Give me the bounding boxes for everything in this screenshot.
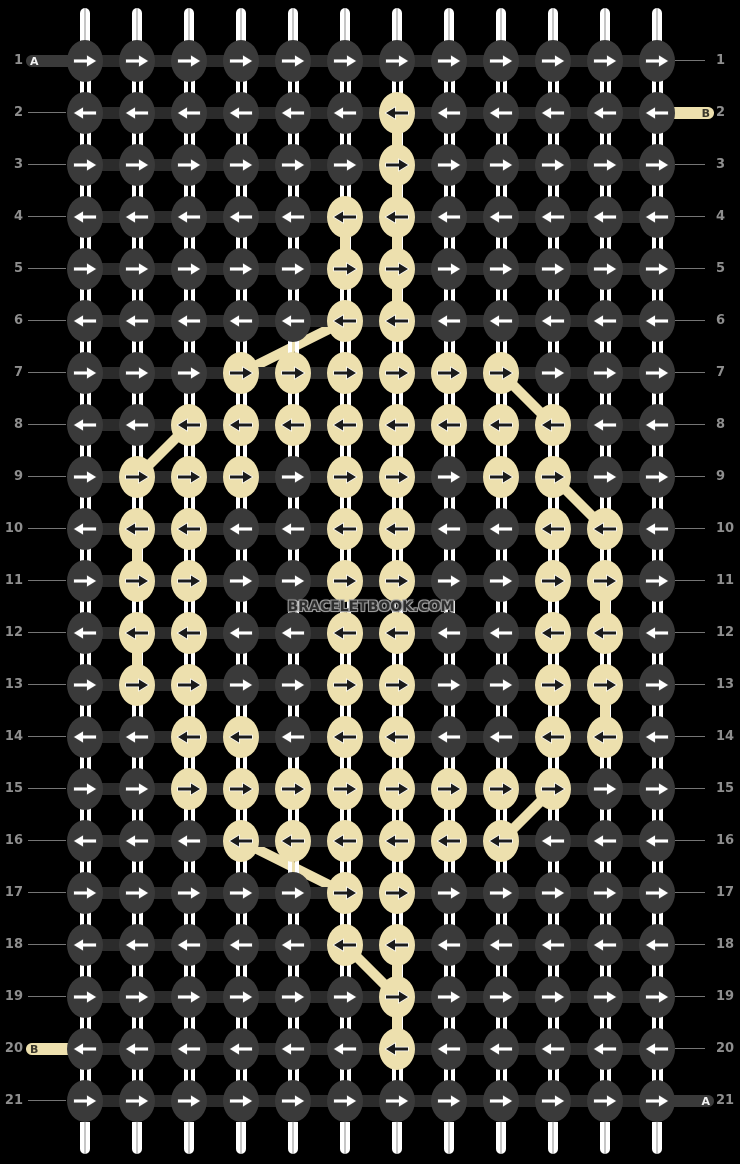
arrow-right-icon bbox=[592, 261, 618, 277]
row-number-right: 5 bbox=[716, 262, 725, 276]
row-guide-line-right bbox=[675, 892, 705, 893]
arrow-right-icon bbox=[644, 1093, 670, 1109]
row-guide-line-right bbox=[675, 944, 705, 945]
arrow-right-icon bbox=[384, 53, 410, 69]
knot bbox=[379, 404, 415, 446]
knot bbox=[587, 872, 623, 914]
knot bbox=[535, 144, 571, 186]
knot bbox=[119, 560, 155, 602]
row-guide-line-right bbox=[675, 372, 705, 373]
arrow-left-icon bbox=[436, 625, 462, 641]
row-number-right: 16 bbox=[716, 834, 734, 848]
arrow-left-icon bbox=[540, 521, 566, 537]
knot bbox=[587, 144, 623, 186]
knot bbox=[223, 352, 259, 394]
row-guide-line-left bbox=[28, 684, 66, 685]
knot bbox=[119, 92, 155, 134]
knot bbox=[223, 560, 259, 602]
arrow-left-icon bbox=[644, 1041, 670, 1057]
row-number-left: 5 bbox=[0, 262, 23, 276]
knot bbox=[275, 404, 311, 446]
arrow-left-icon bbox=[228, 209, 254, 225]
knot bbox=[119, 612, 155, 654]
knot bbox=[379, 196, 415, 238]
arrow-right-icon bbox=[644, 261, 670, 277]
knot bbox=[67, 456, 103, 498]
arrow-right-icon bbox=[540, 157, 566, 173]
arrow-right-icon bbox=[540, 1093, 566, 1109]
row-guide-line-right bbox=[675, 476, 705, 477]
arrow-right-icon bbox=[488, 677, 514, 693]
row-number-right: 7 bbox=[716, 366, 725, 380]
arrow-right-icon bbox=[644, 573, 670, 589]
arrow-left-icon bbox=[228, 1041, 254, 1057]
arrow-left-icon bbox=[384, 833, 410, 849]
warp-string-top bbox=[496, 8, 506, 42]
arrow-left-icon bbox=[332, 937, 358, 953]
knot bbox=[119, 144, 155, 186]
knot bbox=[379, 508, 415, 550]
knot bbox=[327, 40, 363, 82]
knot bbox=[379, 40, 415, 82]
arrow-right-icon bbox=[592, 365, 618, 381]
knot bbox=[171, 612, 207, 654]
knot bbox=[67, 92, 103, 134]
warp-string-top bbox=[548, 8, 558, 42]
knot bbox=[171, 248, 207, 290]
arrow-left-icon bbox=[176, 105, 202, 121]
knot bbox=[587, 976, 623, 1018]
knot bbox=[379, 612, 415, 654]
arrow-right-icon bbox=[592, 781, 618, 797]
arrow-left-icon bbox=[540, 417, 566, 433]
arrow-right-icon bbox=[436, 1093, 462, 1109]
warp-string-top bbox=[444, 8, 454, 42]
arrow-left-icon bbox=[72, 625, 98, 641]
arrow-right-icon bbox=[176, 989, 202, 1005]
row-guide-line-left bbox=[28, 1100, 66, 1101]
arrow-right-icon bbox=[384, 469, 410, 485]
row-number-left: 14 bbox=[0, 730, 23, 744]
knot bbox=[535, 196, 571, 238]
row-number-left: 19 bbox=[0, 990, 23, 1004]
knot bbox=[639, 1028, 675, 1070]
knot bbox=[587, 1080, 623, 1122]
knot bbox=[327, 872, 363, 914]
arrow-left-icon bbox=[488, 105, 514, 121]
knot bbox=[223, 768, 259, 810]
arrow-left-icon bbox=[644, 105, 670, 121]
arrow-right-icon bbox=[332, 365, 358, 381]
arrow-right-icon bbox=[72, 365, 98, 381]
row-guide-line-left bbox=[28, 476, 66, 477]
arrow-right-icon bbox=[644, 885, 670, 901]
knot bbox=[483, 976, 519, 1018]
knot bbox=[67, 248, 103, 290]
knot bbox=[535, 456, 571, 498]
arrow-left-icon bbox=[644, 937, 670, 953]
knot bbox=[171, 820, 207, 862]
arrow-left-icon bbox=[436, 1041, 462, 1057]
knot bbox=[379, 144, 415, 186]
knot bbox=[223, 404, 259, 446]
row-number-right: 13 bbox=[716, 678, 734, 692]
knot bbox=[535, 1080, 571, 1122]
knot bbox=[171, 1080, 207, 1122]
knot bbox=[67, 196, 103, 238]
arrow-right-icon bbox=[280, 989, 306, 1005]
arrow-left-icon bbox=[72, 729, 98, 745]
arrow-right-icon bbox=[436, 989, 462, 1005]
row-number-left: 1 bbox=[0, 54, 23, 68]
arrow-left-icon bbox=[280, 1041, 306, 1057]
warp-string-bottom bbox=[236, 1122, 246, 1154]
knot bbox=[327, 300, 363, 342]
arrow-left-icon bbox=[228, 417, 254, 433]
warp-string-bottom bbox=[392, 1122, 402, 1154]
row-number-left: 11 bbox=[0, 574, 23, 588]
arrow-left-icon bbox=[384, 1041, 410, 1057]
warp-string-bottom bbox=[288, 1122, 298, 1154]
arrow-left-icon bbox=[332, 833, 358, 849]
arrow-right-icon bbox=[488, 53, 514, 69]
knot bbox=[171, 40, 207, 82]
arrow-left-icon bbox=[488, 1041, 514, 1057]
knot bbox=[587, 300, 623, 342]
knot bbox=[483, 92, 519, 134]
arrow-right-icon bbox=[384, 365, 410, 381]
knot bbox=[587, 456, 623, 498]
arrow-right-icon bbox=[228, 365, 254, 381]
arrow-right-icon bbox=[488, 157, 514, 173]
arrow-right-icon bbox=[72, 885, 98, 901]
row-number-left: 7 bbox=[0, 366, 23, 380]
warp-string-top bbox=[392, 8, 402, 42]
knot bbox=[119, 1028, 155, 1070]
arrow-left-icon bbox=[280, 625, 306, 641]
knot bbox=[483, 144, 519, 186]
knot bbox=[483, 196, 519, 238]
arrow-left-icon bbox=[488, 521, 514, 537]
arrow-right-icon bbox=[488, 989, 514, 1005]
arrow-left-icon bbox=[124, 833, 150, 849]
knot bbox=[223, 144, 259, 186]
knot bbox=[379, 352, 415, 394]
arrow-left-icon bbox=[488, 209, 514, 225]
row-guide-line-left bbox=[28, 892, 66, 893]
arrow-left-icon bbox=[540, 729, 566, 745]
knot bbox=[587, 612, 623, 654]
row-number-right: 6 bbox=[716, 314, 725, 328]
arrow-left-icon bbox=[176, 625, 202, 641]
row-number-left: 2 bbox=[0, 106, 23, 120]
arrow-right-icon bbox=[176, 677, 202, 693]
arrow-right-icon bbox=[384, 1093, 410, 1109]
warp-string-bottom bbox=[132, 1122, 142, 1154]
arrow-left-icon bbox=[176, 1041, 202, 1057]
arrow-left-icon bbox=[124, 521, 150, 537]
arrow-left-icon bbox=[176, 729, 202, 745]
arrow-left-icon bbox=[488, 313, 514, 329]
knot bbox=[119, 456, 155, 498]
arrow-right-icon bbox=[488, 365, 514, 381]
arrow-right-icon bbox=[540, 261, 566, 277]
knot bbox=[223, 976, 259, 1018]
knot bbox=[431, 976, 467, 1018]
knot bbox=[639, 404, 675, 446]
watermark: BRACELETBOOK.COM bbox=[286, 599, 456, 615]
arrow-left-icon bbox=[592, 1041, 618, 1057]
row-guide-line-right bbox=[675, 1048, 705, 1049]
row-number-left: 17 bbox=[0, 886, 23, 900]
arrow-right-icon bbox=[644, 781, 670, 797]
knot bbox=[379, 300, 415, 342]
arrow-right-icon bbox=[72, 989, 98, 1005]
row-guide-line-right bbox=[675, 320, 705, 321]
row-guide-line-left bbox=[28, 632, 66, 633]
knot bbox=[223, 1028, 259, 1070]
knot bbox=[639, 456, 675, 498]
arrow-right-icon bbox=[124, 53, 150, 69]
knot bbox=[223, 612, 259, 654]
knot bbox=[327, 404, 363, 446]
knot bbox=[431, 92, 467, 134]
arrow-right-icon bbox=[72, 157, 98, 173]
knot bbox=[67, 716, 103, 758]
warp-string-top bbox=[340, 8, 350, 42]
arrow-left-icon bbox=[280, 833, 306, 849]
knot bbox=[171, 768, 207, 810]
arrow-right-icon bbox=[436, 469, 462, 485]
knot bbox=[223, 664, 259, 706]
arrow-left-icon bbox=[280, 105, 306, 121]
knot bbox=[67, 352, 103, 394]
arrow-left-icon bbox=[592, 521, 618, 537]
knot bbox=[223, 456, 259, 498]
row-guide-line-left bbox=[28, 164, 66, 165]
knot bbox=[67, 768, 103, 810]
knot bbox=[275, 144, 311, 186]
row-number-right: 2 bbox=[716, 106, 725, 120]
knot bbox=[483, 872, 519, 914]
knot bbox=[223, 300, 259, 342]
arrow-right-icon bbox=[228, 53, 254, 69]
arrow-right-icon bbox=[72, 1093, 98, 1109]
knot bbox=[119, 40, 155, 82]
arrow-right-icon bbox=[280, 781, 306, 797]
arrow-left-icon bbox=[540, 833, 566, 849]
knot bbox=[483, 768, 519, 810]
row-number-right: 20 bbox=[716, 1042, 734, 1056]
knot bbox=[639, 976, 675, 1018]
knot bbox=[587, 508, 623, 550]
arrow-left-icon bbox=[280, 521, 306, 537]
knot bbox=[119, 1080, 155, 1122]
knot bbox=[639, 92, 675, 134]
arrow-right-icon bbox=[124, 885, 150, 901]
knot bbox=[431, 612, 467, 654]
knot bbox=[483, 508, 519, 550]
arrow-right-icon bbox=[124, 1093, 150, 1109]
knot bbox=[327, 196, 363, 238]
arrow-left-icon bbox=[592, 833, 618, 849]
knot bbox=[327, 456, 363, 498]
knot bbox=[67, 1028, 103, 1070]
arrow-left-icon bbox=[488, 729, 514, 745]
arrow-right-icon bbox=[488, 1093, 514, 1109]
arrow-right-icon bbox=[228, 1093, 254, 1109]
arrow-right-icon bbox=[540, 677, 566, 693]
arrow-left-icon bbox=[228, 521, 254, 537]
arrow-left-icon bbox=[488, 625, 514, 641]
knot bbox=[171, 1028, 207, 1070]
row-guide-line-right bbox=[675, 60, 705, 61]
thread-letter: B bbox=[30, 1044, 38, 1055]
arrow-right-icon bbox=[176, 53, 202, 69]
knot bbox=[639, 924, 675, 966]
row-guide-line-left bbox=[28, 996, 66, 997]
arrow-right-icon bbox=[436, 573, 462, 589]
knot bbox=[535, 1028, 571, 1070]
row-number-right: 3 bbox=[716, 158, 725, 172]
arrow-right-icon bbox=[72, 53, 98, 69]
row-number-right: 10 bbox=[716, 522, 734, 536]
knot bbox=[275, 92, 311, 134]
knot bbox=[587, 768, 623, 810]
arrow-right-icon bbox=[124, 469, 150, 485]
knot bbox=[535, 508, 571, 550]
arrow-right-icon bbox=[228, 573, 254, 589]
knot bbox=[431, 664, 467, 706]
arrow-left-icon bbox=[384, 937, 410, 953]
knot bbox=[119, 248, 155, 290]
arrow-left-icon bbox=[228, 937, 254, 953]
row-guide-line-left bbox=[28, 372, 66, 373]
arrow-right-icon bbox=[488, 781, 514, 797]
arrow-right-icon bbox=[644, 365, 670, 381]
knot bbox=[587, 404, 623, 446]
knot bbox=[171, 196, 207, 238]
knot bbox=[483, 924, 519, 966]
knot bbox=[535, 820, 571, 862]
arrow-right-icon bbox=[384, 157, 410, 173]
arrow-right-icon bbox=[332, 885, 358, 901]
arrow-right-icon bbox=[124, 677, 150, 693]
knot bbox=[171, 664, 207, 706]
arrow-left-icon bbox=[436, 937, 462, 953]
row-guide-line-left bbox=[28, 580, 66, 581]
arrow-left-icon bbox=[72, 313, 98, 329]
thread-end-b: B bbox=[26, 1043, 68, 1055]
arrow-left-icon bbox=[280, 937, 306, 953]
arrow-left-icon bbox=[228, 833, 254, 849]
warp-string-top bbox=[236, 8, 246, 42]
knot bbox=[587, 716, 623, 758]
knot bbox=[431, 144, 467, 186]
row-guide-line-right bbox=[675, 736, 705, 737]
arrow-right-icon bbox=[332, 469, 358, 485]
row-guide-line-right bbox=[675, 684, 705, 685]
arrow-left-icon bbox=[124, 105, 150, 121]
row-guide-line-right bbox=[675, 216, 705, 217]
row-guide-line-left bbox=[28, 112, 66, 113]
arrow-right-icon bbox=[280, 1093, 306, 1109]
arrow-left-icon bbox=[124, 937, 150, 953]
knot bbox=[431, 300, 467, 342]
knot bbox=[379, 456, 415, 498]
arrow-right-icon bbox=[540, 573, 566, 589]
row-number-right: 19 bbox=[716, 990, 734, 1004]
arrow-left-icon bbox=[540, 937, 566, 953]
arrow-right-icon bbox=[72, 677, 98, 693]
knot bbox=[639, 716, 675, 758]
knot bbox=[639, 144, 675, 186]
arrow-right-icon bbox=[644, 989, 670, 1005]
knot bbox=[483, 300, 519, 342]
knot bbox=[379, 248, 415, 290]
knot bbox=[119, 716, 155, 758]
knot bbox=[535, 612, 571, 654]
row-number-right: 15 bbox=[716, 782, 734, 796]
knot bbox=[67, 300, 103, 342]
arrow-right-icon bbox=[228, 989, 254, 1005]
knot bbox=[327, 716, 363, 758]
knot bbox=[275, 768, 311, 810]
arrow-right-icon bbox=[488, 573, 514, 589]
warp-string-bottom bbox=[80, 1122, 90, 1154]
knot bbox=[275, 1028, 311, 1070]
arrow-left-icon bbox=[176, 833, 202, 849]
knot bbox=[67, 560, 103, 602]
knot bbox=[587, 1028, 623, 1070]
knot bbox=[535, 716, 571, 758]
arrow-right-icon bbox=[124, 573, 150, 589]
knot bbox=[639, 40, 675, 82]
row-number-left: 10 bbox=[0, 522, 23, 536]
row-number-left: 8 bbox=[0, 418, 23, 432]
arrow-right-icon bbox=[488, 261, 514, 277]
arrow-left-icon bbox=[124, 1041, 150, 1057]
arrow-right-icon bbox=[280, 885, 306, 901]
knot bbox=[119, 924, 155, 966]
row-guide-line-left bbox=[28, 736, 66, 737]
arrow-right-icon bbox=[332, 677, 358, 693]
arrow-right-icon bbox=[72, 261, 98, 277]
knot bbox=[119, 820, 155, 862]
knot bbox=[535, 560, 571, 602]
arrow-left-icon bbox=[384, 105, 410, 121]
arrow-left-icon bbox=[124, 417, 150, 433]
knot bbox=[327, 924, 363, 966]
arrow-left-icon bbox=[592, 417, 618, 433]
row-number-left: 15 bbox=[0, 782, 23, 796]
knot bbox=[327, 248, 363, 290]
knot bbox=[431, 352, 467, 394]
row-guide-line-left bbox=[28, 840, 66, 841]
bracelet-pattern-canvas: 11A22B3344556677889910101111121213131414… bbox=[0, 0, 740, 1164]
knot bbox=[431, 560, 467, 602]
knot bbox=[587, 924, 623, 966]
arrow-right-icon bbox=[488, 469, 514, 485]
warp-string-top bbox=[288, 8, 298, 42]
knot bbox=[119, 664, 155, 706]
warp-string-top bbox=[80, 8, 90, 42]
arrow-left-icon bbox=[384, 417, 410, 433]
knot bbox=[171, 508, 207, 550]
arrow-right-icon bbox=[176, 1093, 202, 1109]
knot bbox=[587, 352, 623, 394]
arrow-left-icon bbox=[176, 417, 202, 433]
